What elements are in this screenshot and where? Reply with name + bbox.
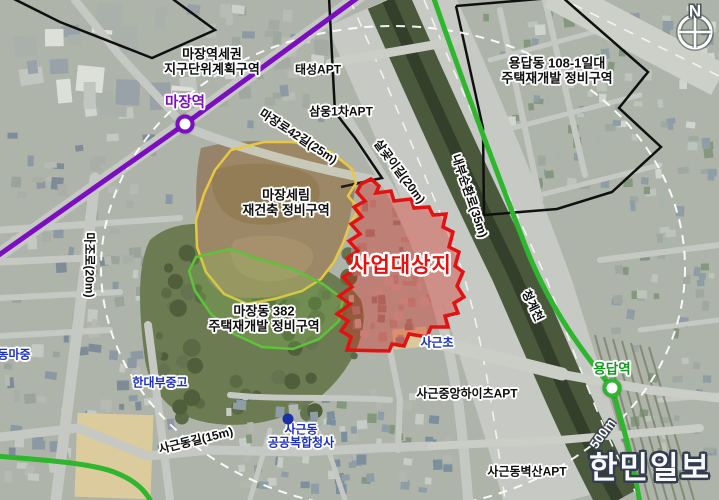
label-majangdong-382-zone: 마장동 382 주택재개발 정비구역 <box>208 304 319 333</box>
label-compass-n: N <box>689 1 701 20</box>
label-majang-serim-zone: 마장세림 재건축 정비구역 <box>242 188 329 217</box>
label-sageun-byeoksan-apt: 사근동벽산APT <box>487 465 566 478</box>
label-jigudanwi-zone: 마장역세권 지구단위계획구역 <box>164 47 260 76</box>
label-majangro-42-gil: 마장로42길(25m) <box>257 107 339 167</box>
news-map-graphic: 마장역세권 지구단위계획구역태성APT용답동 108-1일대 주택재개발 정비구… <box>0 0 719 500</box>
label-majoro: 마조로(20m) <box>82 232 95 297</box>
label-saeop-daesangji: 사업대상지 <box>350 254 452 278</box>
label-salgoji-gil: 살곶이길(20m) <box>371 138 428 207</box>
label-samung-1cha-apt: 삼웅1차APT <box>309 105 373 118</box>
label-sageundong-gil: 사근동길(15m) <box>157 425 234 456</box>
yongdap-station-marker <box>603 379 622 398</box>
label-majang-station: 마장역 <box>165 95 205 111</box>
label-dongma-middle: 동마중 <box>0 348 31 361</box>
label-cheonggyecheon: 청계천 <box>519 288 546 324</box>
label-sageun-jungang-heights-apt: 사근중앙하이츠APT <box>416 387 517 400</box>
map-labels: 마장역세권 지구단위계획구역태성APT용답동 108-1일대 주택재개발 정비구… <box>0 0 719 500</box>
label-gonggong-cheongsa: 사근동 공공복합청사 <box>268 424 334 451</box>
label-sageun-elementary: 사근초 <box>420 336 453 349</box>
gonggong-cheongsa-dot <box>283 414 294 425</box>
label-hanmin-ilbo-watermark: 한민일보 <box>589 452 711 487</box>
label-taeseong-apt: 태성APT <box>295 63 341 76</box>
label-radius-500m: 500m <box>588 416 619 452</box>
label-yongdap-zone: 용답동 108-1일대 주택재개발 정비구역 <box>501 56 612 85</box>
label-handae-bu-school: 한대부중고 <box>132 376 187 389</box>
majang-station-marker <box>176 115 195 134</box>
label-yongdap-station: 용답역 <box>593 361 630 376</box>
label-naebu-sunhwanro: 내부순환로(35m) <box>448 153 489 240</box>
